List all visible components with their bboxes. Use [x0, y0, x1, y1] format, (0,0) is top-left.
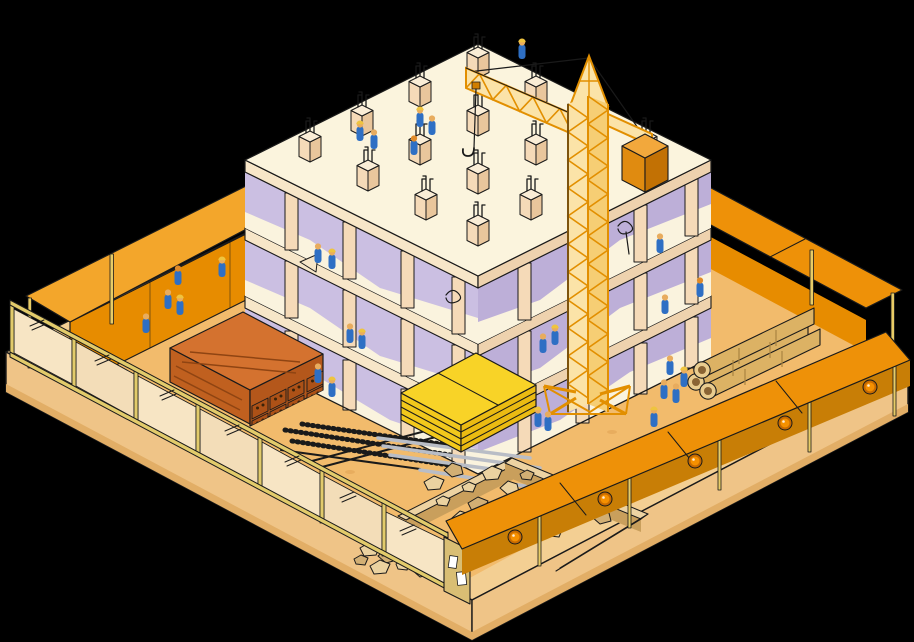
worker: [697, 277, 704, 297]
worker: [165, 289, 172, 309]
isometric-scene: [0, 0, 914, 642]
worker: [673, 383, 680, 403]
worker: [650, 407, 657, 427]
worker: [347, 323, 354, 343]
lamp: [508, 530, 522, 544]
worker: [328, 377, 335, 397]
worker: [371, 129, 378, 149]
worker: [218, 257, 225, 277]
worker: [540, 333, 547, 353]
worker: [518, 39, 525, 59]
crane-counterweight: [622, 134, 668, 192]
worker: [657, 233, 664, 253]
worker: [662, 294, 669, 314]
worker: [667, 355, 674, 375]
worker: [429, 115, 436, 135]
construction-site-illustration: [0, 0, 914, 642]
worker: [411, 135, 418, 155]
worker: [143, 313, 150, 333]
lamp: [863, 380, 877, 394]
worker: [356, 121, 363, 141]
worker: [551, 325, 558, 345]
worker: [680, 367, 687, 387]
worker: [175, 265, 182, 285]
lamp: [688, 454, 702, 468]
worker: [176, 295, 183, 315]
back-right-canopy-post: [810, 250, 814, 305]
worker: [534, 407, 541, 427]
worker: [416, 107, 423, 127]
back-left-canopy-post: [110, 254, 114, 324]
worker: [315, 243, 322, 263]
gate-notice: [448, 556, 458, 569]
lamp: [778, 416, 792, 430]
worker: [328, 249, 335, 269]
worker: [661, 379, 668, 399]
worker: [545, 411, 552, 431]
crane-tower: [568, 96, 608, 412]
lamp: [598, 492, 612, 506]
worker: [315, 363, 322, 383]
worker: [358, 329, 365, 349]
